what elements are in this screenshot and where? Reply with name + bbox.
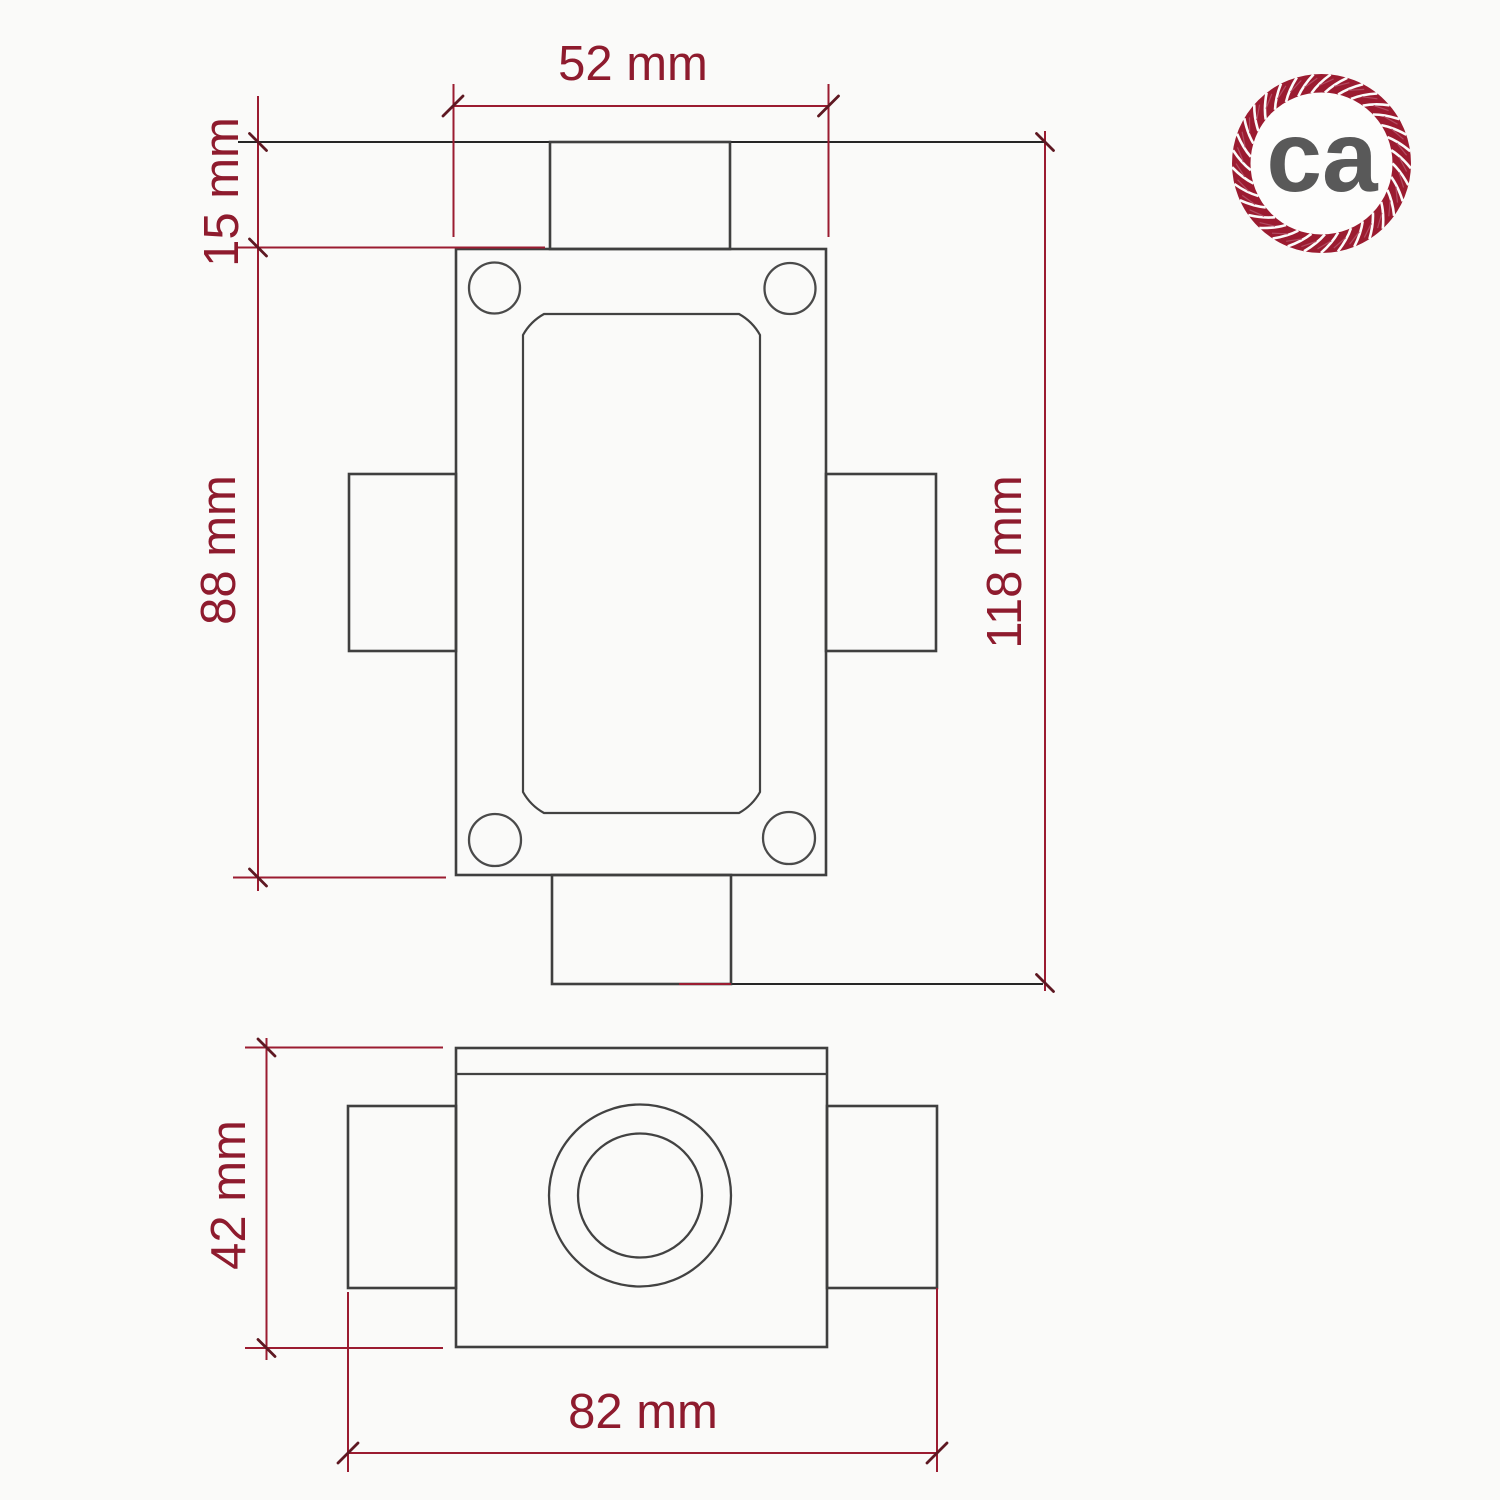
- svg-text:52 mm: 52 mm: [558, 37, 708, 91]
- svg-text:ca: ca: [1266, 101, 1379, 213]
- svg-text:82 mm: 82 mm: [568, 1385, 718, 1439]
- svg-text:42 mm: 42 mm: [202, 1120, 256, 1270]
- svg-text:15 mm: 15 mm: [195, 117, 249, 267]
- svg-text:88 mm: 88 mm: [192, 475, 246, 625]
- svg-text:118 mm: 118 mm: [978, 475, 1032, 648]
